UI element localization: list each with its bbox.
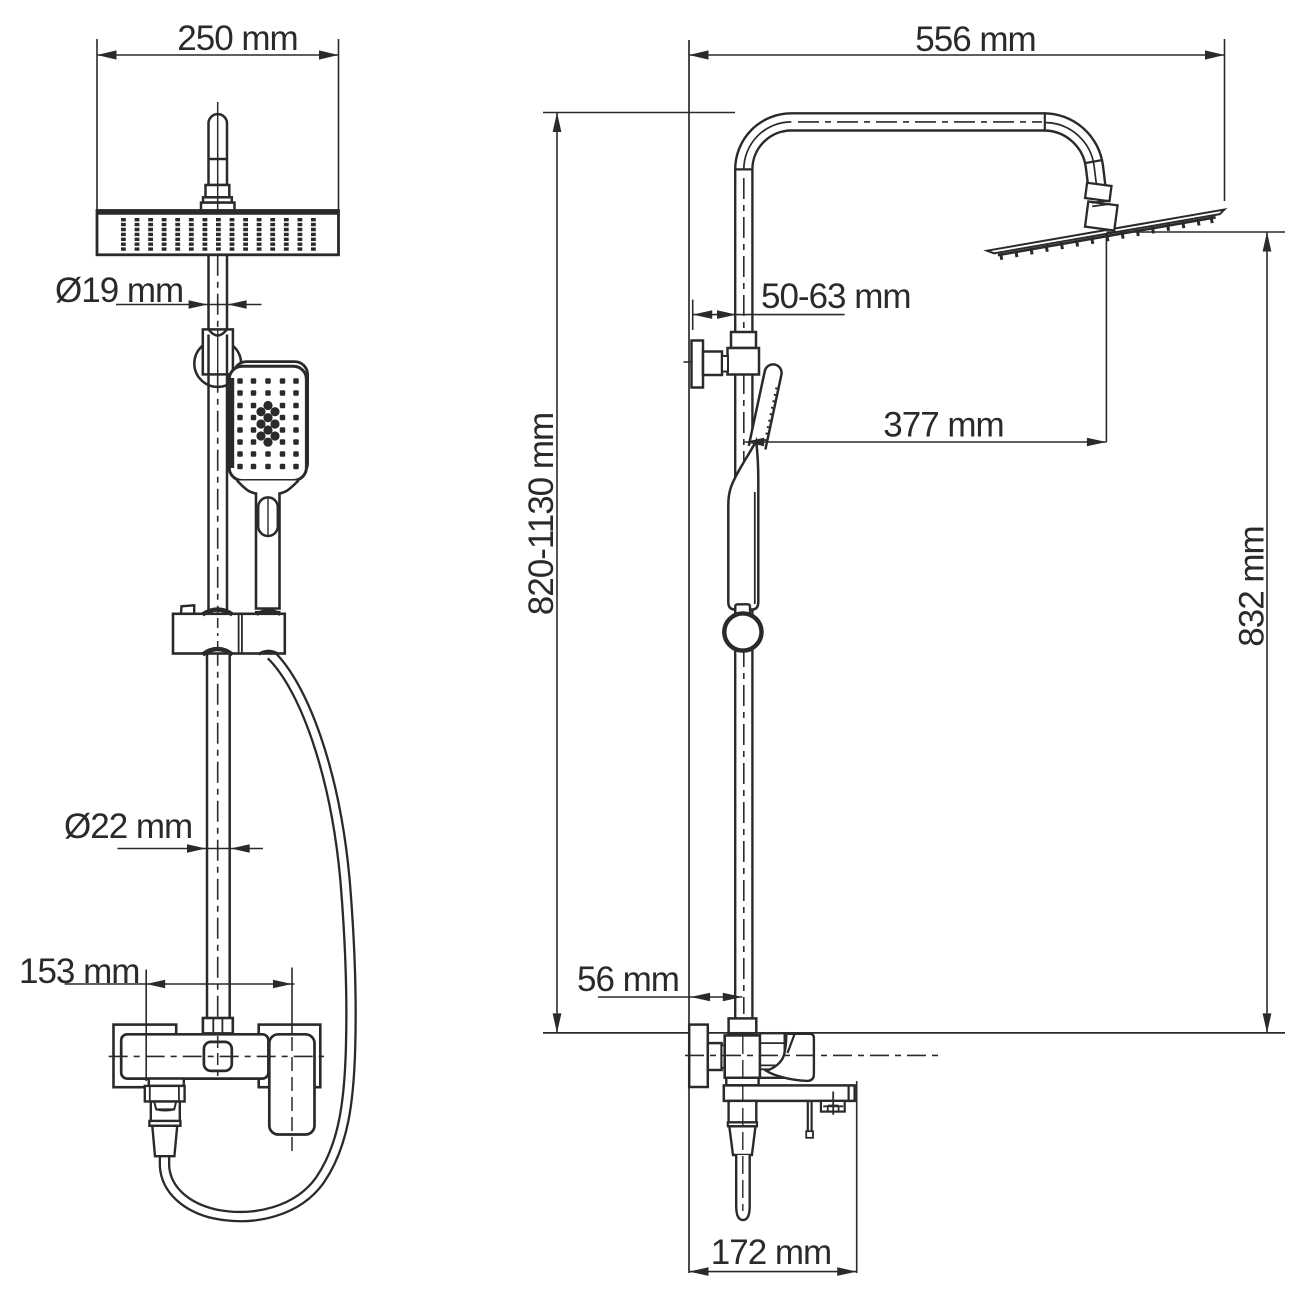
svg-text:832 mm: 832 mm — [1233, 526, 1272, 646]
svg-text:377 mm: 377 mm — [883, 406, 1003, 445]
svg-text:820-1130 mm: 820-1130 mm — [522, 413, 561, 615]
svg-text:Ø19 mm: Ø19 mm — [55, 271, 183, 310]
svg-text:Ø22 mm: Ø22 mm — [64, 807, 192, 846]
svg-text:556 mm: 556 mm — [915, 20, 1035, 59]
svg-text:172 mm: 172 mm — [711, 1233, 831, 1272]
svg-text:153 mm: 153 mm — [19, 952, 139, 991]
svg-text:56 mm: 56 mm — [577, 960, 679, 999]
svg-text:250 mm: 250 mm — [177, 19, 297, 58]
svg-text:50-63 mm: 50-63 mm — [761, 277, 911, 316]
